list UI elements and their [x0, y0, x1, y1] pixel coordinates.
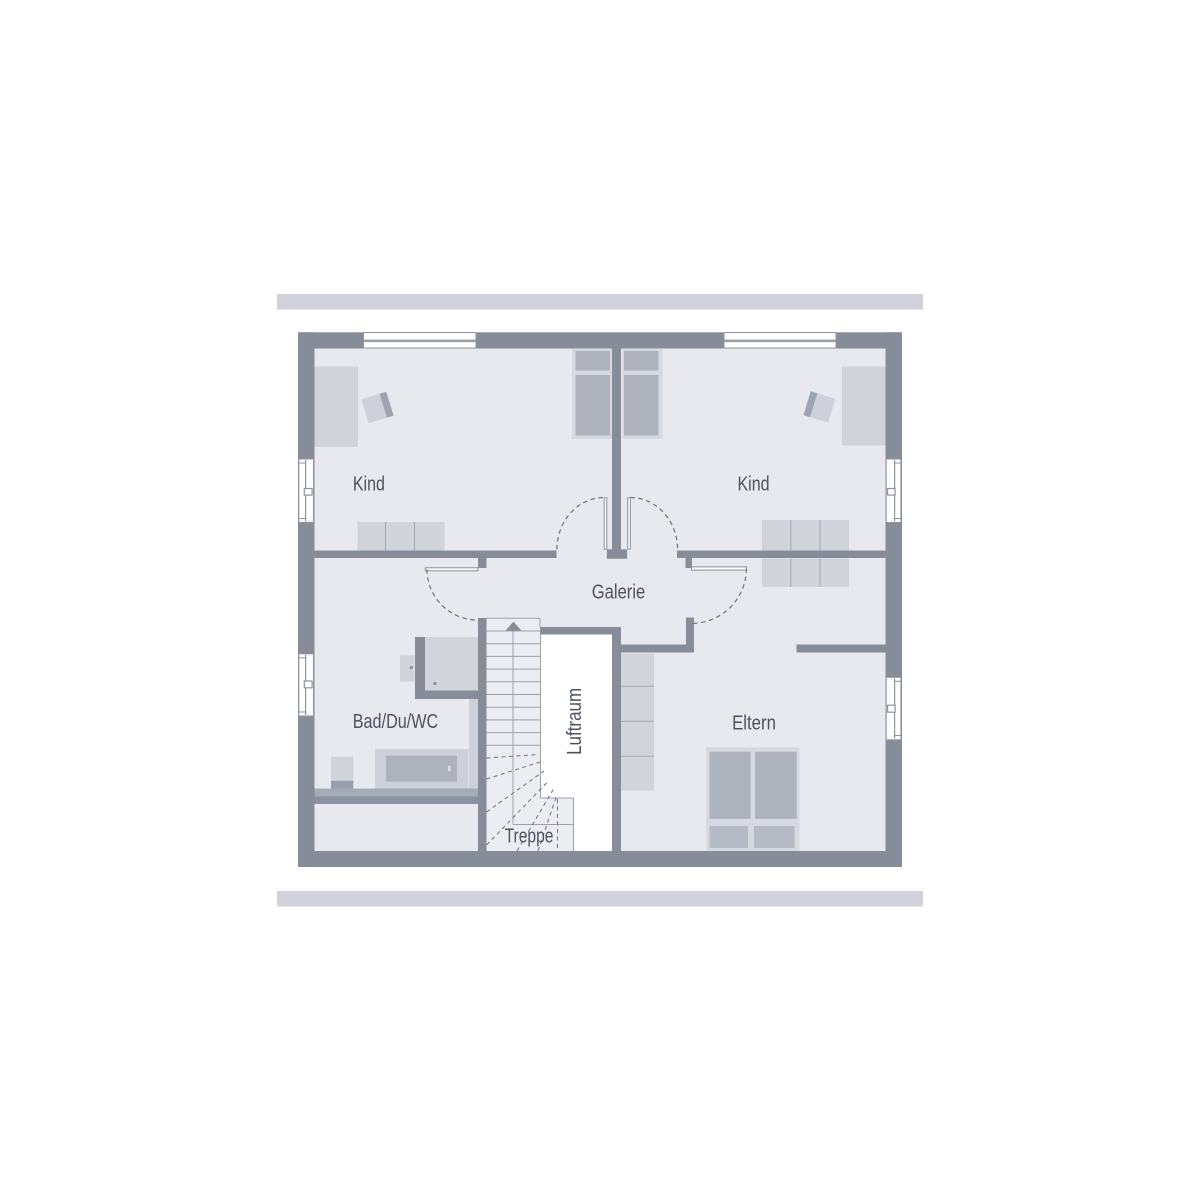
- svg-text:Treppe: Treppe: [505, 825, 554, 847]
- svg-text:Kind: Kind: [353, 473, 385, 495]
- svg-text:Bad/Du/WC: Bad/Du/WC: [353, 710, 438, 732]
- svg-text:Galerie: Galerie: [592, 580, 645, 603]
- svg-text:Luftraum: Luftraum: [563, 688, 586, 755]
- svg-text:Eltern: Eltern: [732, 711, 776, 734]
- svg-text:Kind: Kind: [737, 473, 769, 495]
